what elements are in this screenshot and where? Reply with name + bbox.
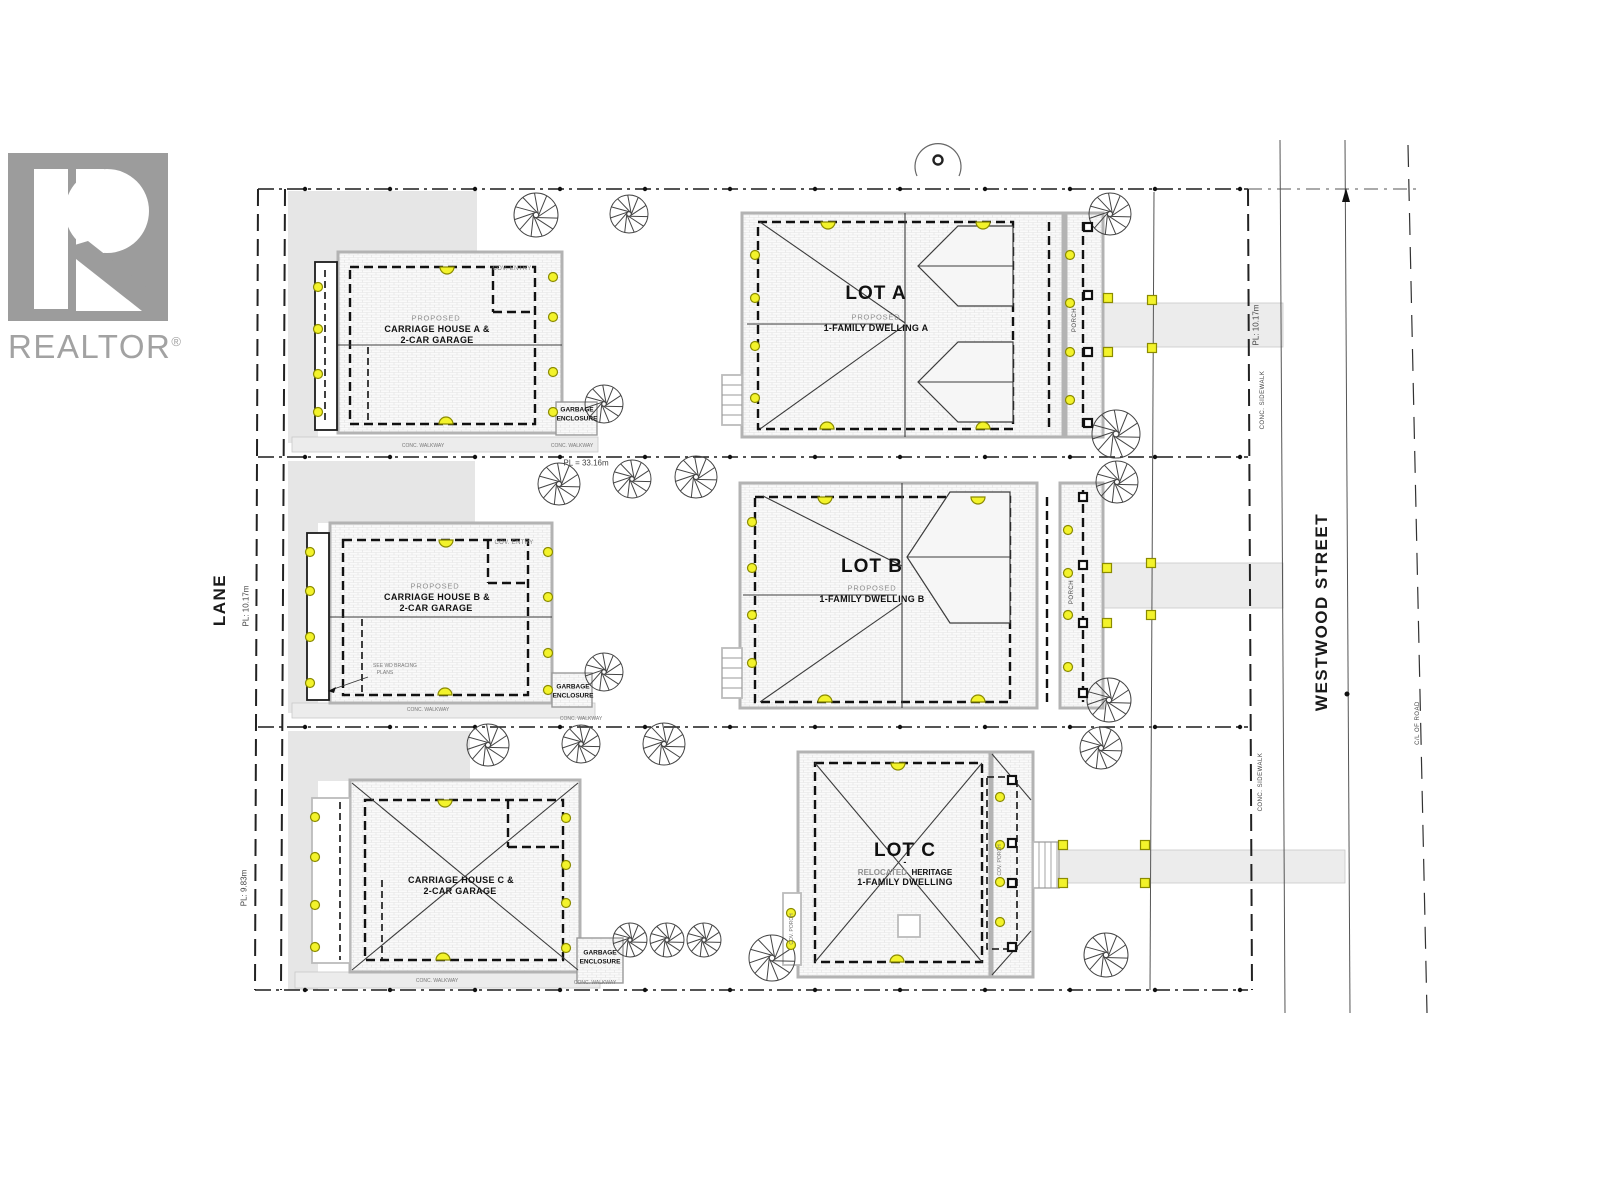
concrete-walkway <box>1059 850 1345 883</box>
survey-dot <box>1345 692 1350 697</box>
survey-dot <box>983 988 987 992</box>
cov-entry-b-label: COV. ENTRY <box>494 540 533 546</box>
pl-dimension-right: PL: 10.17m <box>1252 305 1261 346</box>
survey-dot <box>1068 725 1072 729</box>
survey-dot <box>1068 988 1072 992</box>
survey-dot <box>898 187 902 191</box>
survey-dot <box>643 187 647 191</box>
garbage-a-label-1: GARBAGE <box>560 407 593 414</box>
marker-dot <box>544 686 553 695</box>
marker-dot <box>1064 611 1073 620</box>
conc-walkway-b1-label: CONC. WALKWAY <box>407 707 449 713</box>
dwelling-b-porch-roof <box>1060 483 1103 708</box>
conc-walkway-a1-label: CONC. WALKWAY <box>402 443 444 449</box>
survey-dot <box>1153 725 1157 729</box>
tree-icon <box>610 195 648 233</box>
marker-dot <box>751 294 760 303</box>
conc-walkway-c2-label: CONC. WALKWAY <box>574 980 616 986</box>
carriage-c-side-porch <box>312 798 350 963</box>
driveway-pad <box>288 191 318 443</box>
marker-square <box>1059 879 1068 888</box>
marker-dot <box>311 853 320 862</box>
tree-icon <box>675 456 717 498</box>
marker-square <box>1104 348 1113 357</box>
marker-dot <box>562 861 571 870</box>
survey-dot <box>728 187 732 191</box>
utility-pole-icon <box>915 144 961 176</box>
conc-walkway-c1-label: CONC. WALKWAY <box>416 978 458 984</box>
marker-dot <box>544 593 553 602</box>
survey-dot <box>813 455 817 459</box>
survey-dot <box>983 187 987 191</box>
porch-post <box>1008 776 1016 784</box>
marker-dot <box>544 649 553 658</box>
marker-dot <box>1064 663 1073 672</box>
marker-dot <box>306 548 315 557</box>
survey-dot <box>303 187 307 191</box>
bracing-note-line1: SEE WD BRACING <box>373 663 417 669</box>
cov-porch-right-label: COV. PORCH <box>997 844 1003 875</box>
tree-icon <box>585 653 623 691</box>
conc-walkway-a2-label: CONC. WALKWAY <box>551 443 593 449</box>
conc-sidewalk-label-lower: CONC. SIDEWALK <box>1258 753 1264 812</box>
marker-dot <box>1066 299 1075 308</box>
carriage-b-name-label: CARRIAGE HOUSE B & <box>384 592 490 602</box>
carriage-b-proposed-label: PROPOSED <box>411 582 460 591</box>
survey-dot <box>983 725 987 729</box>
marker-dot <box>562 944 571 953</box>
marker-dot <box>1064 569 1073 578</box>
concrete-walkway <box>1103 563 1283 608</box>
bracing-note-line2: PLANS <box>377 670 393 676</box>
marker-dot <box>996 878 1005 887</box>
carriage-house-b-roof <box>330 523 552 703</box>
site-plan-drawing <box>0 0 1600 1200</box>
marker-dot <box>314 325 323 334</box>
tree-icon <box>613 460 651 498</box>
marker-dot <box>1066 396 1075 405</box>
survey-dot <box>813 988 817 992</box>
porch-post <box>1079 493 1087 501</box>
porch-post <box>1079 689 1087 697</box>
lot-a-proposed-label: PROPOSED <box>852 313 901 322</box>
porch-a-label: PORCH <box>1072 308 1078 332</box>
lane-street-label: LANE <box>210 574 230 626</box>
pl-dimension-left-c: PL: 9.83m <box>240 870 249 906</box>
dwelling-b-stairs <box>722 648 742 698</box>
marker-dot <box>311 813 320 822</box>
survey-dot <box>473 988 477 992</box>
plan-line <box>1408 145 1427 1013</box>
porch-post <box>1079 619 1087 627</box>
survey-dot <box>303 455 307 459</box>
lot-b-proposed-label: PROPOSED <box>848 584 897 593</box>
survey-dot <box>813 725 817 729</box>
pl-frontage-dimension: PL = 33.16m <box>563 459 608 468</box>
carriage-c-garage-label: 2-CAR GARAGE <box>423 886 496 896</box>
garbage-c-label-1: GARBAGE <box>583 950 616 957</box>
survey-dot <box>1153 455 1157 459</box>
marker-square <box>1104 294 1113 303</box>
marker-dot <box>314 408 323 417</box>
garbage-c-label-2: ENCLOSURE <box>580 959 621 966</box>
plan-line <box>281 189 285 990</box>
marker-dot <box>751 394 760 403</box>
porch-b-label: PORCH <box>1069 580 1075 604</box>
survey-dot <box>898 455 902 459</box>
survey-dot <box>643 455 647 459</box>
lot-b-dwelling-label: 1-FAMILY DWELLING B <box>819 594 924 604</box>
survey-dot <box>303 725 307 729</box>
survey-dot <box>388 187 392 191</box>
marker-dot <box>748 518 757 527</box>
survey-dot <box>303 988 307 992</box>
survey-dot <box>1153 988 1157 992</box>
conc-walkway-b2-label: CONC. WALKWAY <box>560 716 602 722</box>
porch-post <box>1008 879 1016 887</box>
marker-dot <box>311 943 320 952</box>
marker-dot <box>549 313 558 322</box>
dwelling-c-stairs <box>1033 842 1059 888</box>
site-plan-page: REALTOR® LANE WESTWOOD STREET CONC. SIDE… <box>0 0 1600 1200</box>
marker-dot <box>311 901 320 910</box>
marker-dot <box>996 918 1005 927</box>
carriage-b-side-porch <box>307 533 329 700</box>
marker-dot <box>1064 526 1073 535</box>
garbage-b-label-1: GARBAGE <box>556 684 589 691</box>
marker-square <box>1103 619 1112 628</box>
carriage-a-garage-label: 2-CAR GARAGE <box>400 335 473 345</box>
survey-dot <box>898 988 902 992</box>
marker-square <box>1147 559 1156 568</box>
marker-dot <box>314 283 323 292</box>
marker-dot <box>549 273 558 282</box>
marker-dot <box>751 342 760 351</box>
marker-dot <box>1066 348 1075 357</box>
marker-square <box>1103 564 1112 573</box>
tree-icon <box>643 723 685 765</box>
porch-post <box>1084 291 1092 299</box>
pl-dimension-left: PL: 10.17m <box>242 586 251 627</box>
marker-dot <box>562 899 571 908</box>
survey-dot <box>388 725 392 729</box>
marker-dot <box>1066 251 1075 260</box>
tree-icon <box>1084 933 1128 977</box>
lot-a-dwelling-label: 1-FAMILY DWELLING A <box>824 323 929 333</box>
lot-c-dwelling-label: 1-FAMILY DWELLING <box>857 877 953 887</box>
survey-dot <box>728 725 732 729</box>
survey-dot <box>1238 455 1242 459</box>
survey-dot <box>388 455 392 459</box>
carriage-a-name-label: CARRIAGE HOUSE A & <box>384 324 489 334</box>
survey-dot <box>728 455 732 459</box>
porch-post <box>1084 348 1092 356</box>
survey-dot <box>1238 187 1242 191</box>
carriage-c-name-label: CARRIAGE HOUSE C & <box>408 875 514 885</box>
porch-post <box>1008 943 1016 951</box>
street-line-arrow-icon <box>1342 188 1350 202</box>
tree-icon <box>514 193 558 237</box>
marker-square <box>1148 296 1157 305</box>
survey-dot <box>898 725 902 729</box>
marker-dot <box>748 564 757 573</box>
conc-sidewalk-label-upper: CONC. SIDEWALK <box>1260 371 1266 430</box>
marker-square <box>1141 841 1150 850</box>
cov-entry-a-label: COV. ENTRY <box>492 266 531 272</box>
survey-dot <box>813 187 817 191</box>
lot-b-title: LOT B <box>841 556 903 578</box>
garbage-b-label-2: ENCLOSURE <box>553 693 594 700</box>
marker-dot <box>306 633 315 642</box>
plan-line <box>255 189 258 990</box>
survey-dot <box>1238 725 1242 729</box>
tree-icon <box>562 725 600 763</box>
tree-icon <box>538 463 580 505</box>
marker-dot <box>751 251 760 260</box>
centerline-of-road-label: C/L OF ROAD <box>1415 701 1421 745</box>
survey-dot <box>558 187 562 191</box>
marker-dot <box>549 368 558 377</box>
survey-dot <box>643 725 647 729</box>
porch-post <box>1084 223 1092 231</box>
garbage-a-label-2: ENCLOSURE <box>557 416 598 423</box>
survey-dot <box>1153 187 1157 191</box>
dwelling-a-stairs <box>722 375 742 425</box>
marker-square <box>1148 344 1157 353</box>
marker-dot <box>314 370 323 379</box>
survey-dot <box>643 988 647 992</box>
survey-dot <box>1068 187 1072 191</box>
survey-dot <box>558 455 562 459</box>
tree-icon <box>467 724 509 766</box>
porch-post <box>1008 839 1016 847</box>
porch-post <box>1079 561 1087 569</box>
survey-dot <box>983 455 987 459</box>
marker-dot <box>544 548 553 557</box>
survey-dot <box>558 725 562 729</box>
survey-dot <box>473 455 477 459</box>
carriage-b-garage-label: 2-CAR GARAGE <box>399 603 472 613</box>
survey-dot <box>728 988 732 992</box>
westwood-street-label: WESTWOOD STREET <box>1312 513 1332 711</box>
lot-a-title: LOT A <box>845 283 906 305</box>
survey-dot <box>1238 988 1242 992</box>
porch-post <box>1084 419 1092 427</box>
marker-square <box>1147 611 1156 620</box>
marker-square <box>1141 879 1150 888</box>
marker-dot <box>306 679 315 688</box>
tree-icon <box>650 923 684 957</box>
survey-dot <box>1068 455 1072 459</box>
marker-dot <box>562 814 571 823</box>
marker-square <box>1059 841 1068 850</box>
marker-dot <box>996 793 1005 802</box>
survey-dot <box>558 988 562 992</box>
plan-line <box>1345 140 1350 1013</box>
marker-dot <box>748 611 757 620</box>
tree-icon <box>1080 727 1122 769</box>
tree-icon <box>687 923 721 957</box>
survey-dot <box>473 187 477 191</box>
marker-dot <box>748 659 757 668</box>
dwelling-c-chimney <box>898 915 920 937</box>
carriage-a-proposed-label: PROPOSED <box>412 314 461 323</box>
marker-dot <box>306 587 315 596</box>
survey-dot <box>388 988 392 992</box>
cov-porch-left-label: COV. PORCH <box>789 913 795 944</box>
